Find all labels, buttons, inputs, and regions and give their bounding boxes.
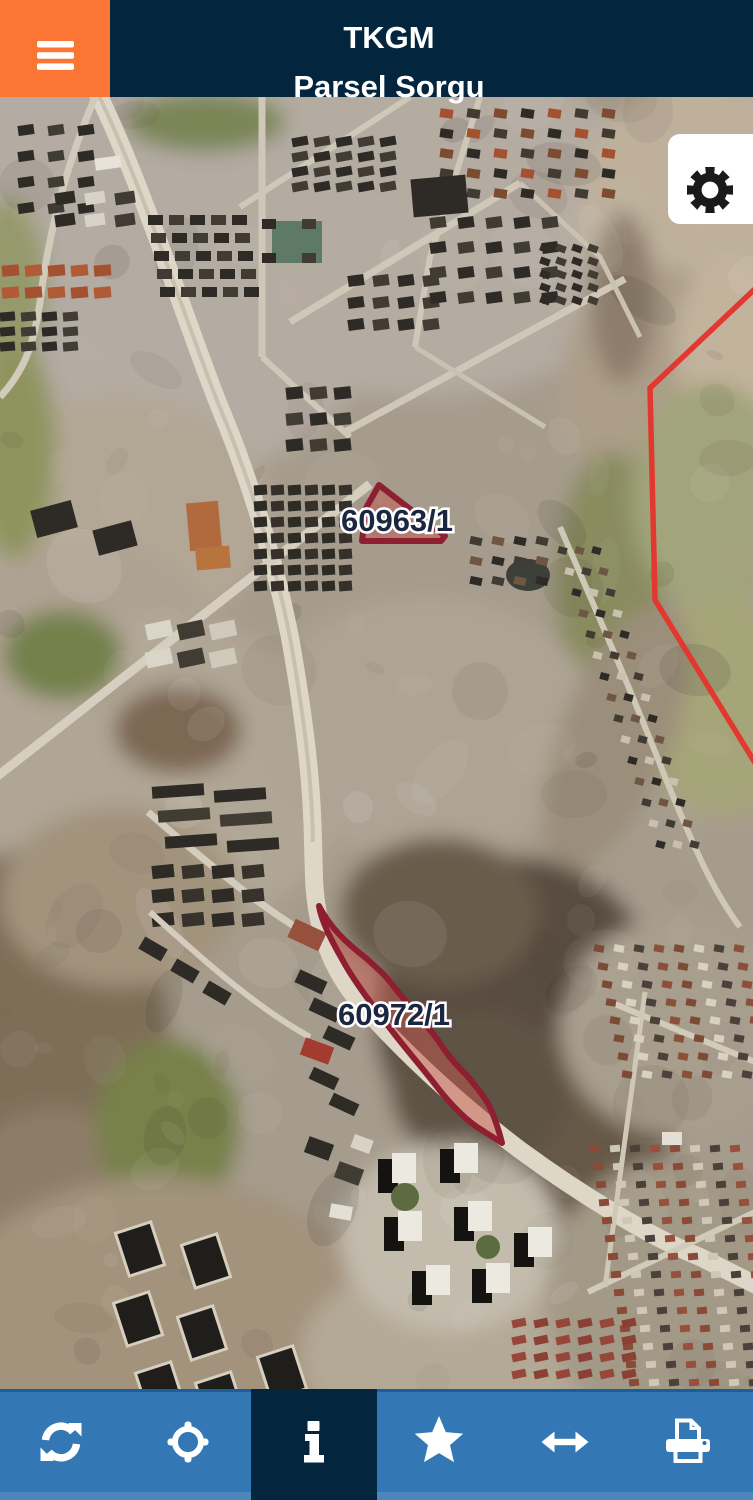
svg-text:60963/1: 60963/1 xyxy=(341,503,453,538)
svg-text:60972/1: 60972/1 xyxy=(338,997,450,1032)
